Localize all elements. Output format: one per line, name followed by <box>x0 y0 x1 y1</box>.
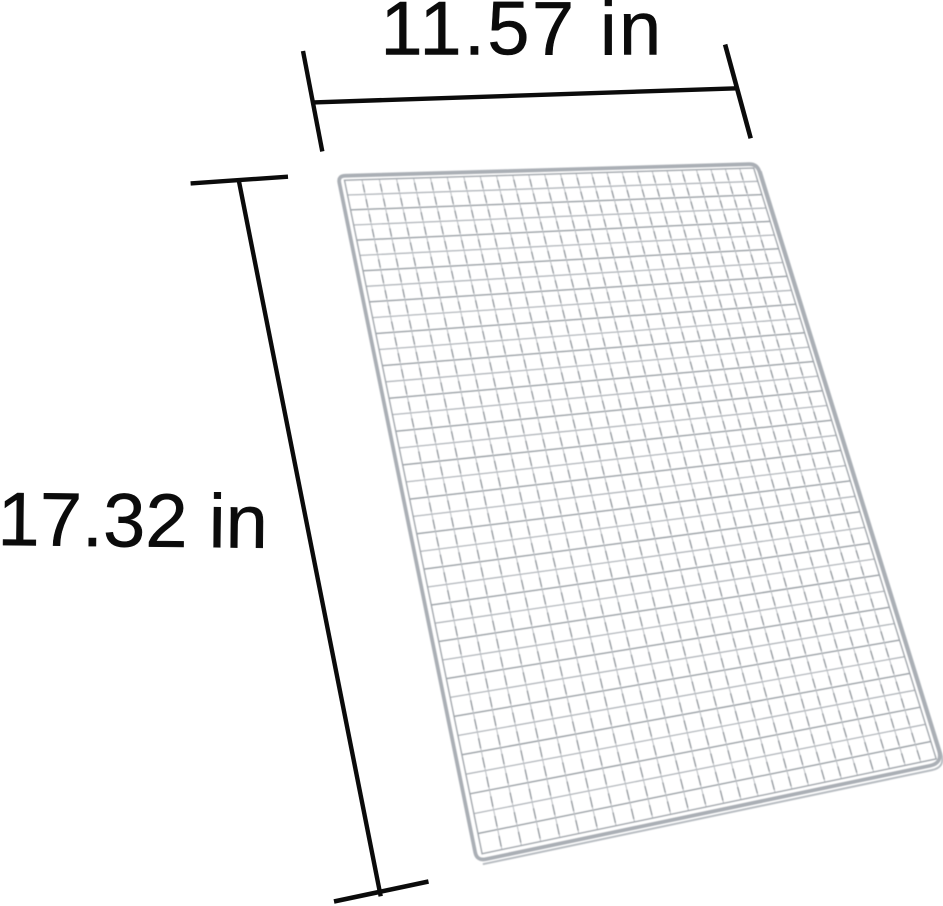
svg-text:11.57 in: 11.57 in <box>380 0 663 72</box>
svg-text:17.32 in: 17.32 in <box>0 477 268 565</box>
